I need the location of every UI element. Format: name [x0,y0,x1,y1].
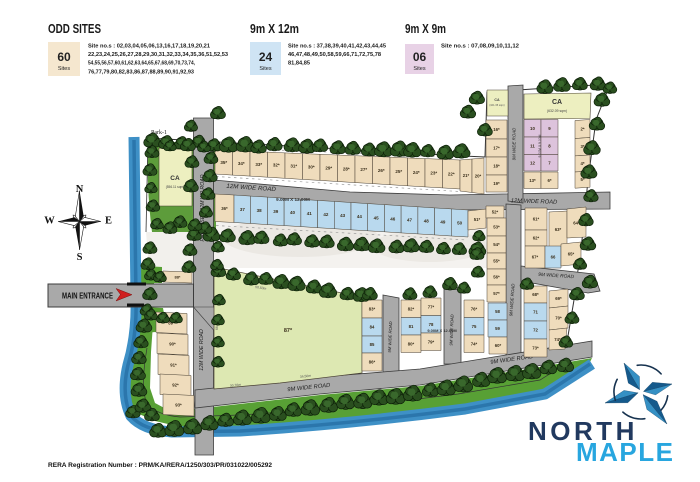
svg-text:(556.11 sqm): (556.11 sqm) [166,185,185,189]
svg-text:60*: 60* [495,343,502,348]
svg-text:Site no.s : 02,03,04,05,06,13,: Site no.s : 02,03,04,05,06,13,16,17,18,1… [88,44,211,50]
svg-text:19*: 19* [493,181,500,186]
svg-text:72: 72 [533,328,538,333]
svg-text:55*: 55* [493,259,500,264]
svg-text:12M WIDE ROAD: 12M WIDE ROAD [199,329,205,371]
svg-text:20*: 20* [475,173,482,178]
svg-text:12: 12 [530,160,535,165]
svg-text:77*: 77* [428,304,435,309]
svg-text:58: 58 [495,309,500,314]
svg-text:59: 59 [495,326,500,331]
svg-text:26*: 26* [378,168,385,173]
svg-text:4*: 4* [580,161,584,166]
svg-text:52*: 52* [492,210,499,215]
svg-text:75: 75 [472,324,477,329]
svg-text:6*: 6* [547,178,551,183]
svg-text:54,55,56,57,60,61,62,63,64,65,: 54,55,56,57,60,61,62,63,64,65,67,68,69,7… [88,61,195,67]
svg-text:11: 11 [530,143,535,148]
svg-text:88*: 88* [174,274,180,279]
svg-text:CA: CA [552,99,562,106]
svg-text:23*: 23* [430,171,437,176]
svg-text:9M WIDE ROAD: 9M WIDE ROAD [512,127,517,161]
svg-text:27*: 27* [360,167,367,172]
svg-text:13*: 13* [529,178,536,183]
svg-text:22,23,24,25,26,27,28,29,30,31,: 22,23,24,25,26,27,28,29,30,31,32,33,34,3… [88,52,229,58]
svg-text:Site no.s : 07,08,09,10,11,12: Site no.s : 07,08,09,10,11,12 [441,44,519,50]
svg-text:18*: 18* [493,164,500,169]
svg-text:84: 84 [370,325,375,330]
svg-text:ODD SITES: ODD SITES [48,22,101,36]
svg-text:62*: 62* [533,236,540,241]
svg-text:69*: 69* [555,296,562,301]
svg-text:35*: 35* [220,160,227,165]
svg-text:53*: 53* [493,225,500,230]
svg-text:36*: 36* [221,206,228,211]
svg-text:24*: 24* [413,170,420,175]
svg-text:33*: 33* [255,162,262,167]
svg-text:CA: CA [494,98,500,102]
svg-text:E: E [105,216,112,227]
svg-text:46: 46 [390,216,396,221]
svg-text:51*: 51* [474,217,481,222]
svg-text:67*: 67* [532,255,539,260]
svg-text:MAIN ENTRANCE: MAIN ENTRANCE [62,292,114,301]
svg-text:86*: 86* [369,360,376,365]
svg-text:22*: 22* [448,172,455,177]
svg-text:71: 71 [533,310,538,315]
svg-text:31*: 31* [290,164,297,169]
svg-text:24: 24 [259,50,273,64]
svg-text:25*: 25* [395,169,402,174]
svg-text:63*: 63* [555,227,562,232]
svg-text:37: 37 [240,207,246,212]
svg-text:45: 45 [374,215,380,220]
svg-text:48: 48 [424,218,430,223]
svg-text:9m X 12m: 9m X 12m [250,22,299,36]
svg-text:61*: 61* [533,217,540,222]
svg-text:76,77,79,80,82,83,86,87,88,89,: 76,77,79,80,82,83,86,87,88,89,90,91,92,9… [88,69,195,75]
svg-text:40: 40 [290,210,296,215]
svg-text:78: 78 [429,322,434,327]
svg-text:N: N [76,184,84,195]
svg-text:Sites: Sites [259,66,271,72]
svg-text:MAPLE: MAPLE [576,437,675,467]
svg-text:81,84,85: 81,84,85 [288,61,311,67]
svg-text:39: 39 [273,209,279,214]
svg-text:9m X 9m: 9m X 9m [405,22,446,36]
svg-text:56*: 56* [493,275,500,280]
svg-text:10: 10 [530,126,535,131]
svg-text:42: 42 [323,212,329,217]
svg-text:2*: 2* [580,127,584,132]
svg-text:60: 60 [57,50,71,64]
svg-text:Park-1: Park-1 [151,130,167,136]
svg-text:9.00M X 9.00M: 9.00M X 9.00M [538,134,542,157]
svg-text:54*: 54* [493,242,500,247]
svg-text:82*: 82* [408,306,415,311]
svg-text:76*: 76* [471,306,478,311]
svg-text:28*: 28* [343,166,350,171]
svg-text:57*: 57* [493,291,500,296]
svg-text:92*: 92* [172,383,179,388]
svg-text:38: 38 [257,208,263,213]
svg-text:32*: 32* [273,163,280,168]
svg-text:46,47,48,49,50,58,59,66,71,72,: 46,47,48,49,50,58,59,66,71,72,75,78 [288,52,382,58]
svg-text:93*: 93* [175,403,182,408]
svg-text:06: 06 [413,50,427,64]
svg-text:68*: 68* [532,292,539,297]
svg-text:21*: 21* [463,173,470,178]
svg-text:16*: 16* [493,127,500,132]
svg-text:83*: 83* [369,307,376,312]
svg-text:73*: 73* [532,346,539,351]
svg-text:(101.35 sqm): (101.35 sqm) [489,103,504,107]
svg-text:CA: CA [170,175,180,182]
svg-text:66: 66 [551,255,556,260]
svg-text:RERA Registration Number : PRM: RERA Registration Number : PRM/KA/RERA/1… [48,463,273,469]
svg-text:81: 81 [409,324,414,329]
svg-text:90*: 90* [169,342,176,347]
svg-text:79*: 79* [428,339,435,344]
svg-text:Site no.s : 37,38,39,40,41,42,: Site no.s : 37,38,39,40,41,42,43,44,45 [288,44,387,50]
svg-text:30*: 30* [308,165,315,170]
svg-text:50: 50 [457,221,463,226]
svg-text:17*: 17* [493,146,500,151]
svg-text:W: W [44,216,55,227]
svg-text:43: 43 [340,213,346,218]
svg-text:85: 85 [370,342,375,347]
svg-text:41: 41 [307,211,313,216]
svg-text:34*: 34* [238,161,245,166]
svg-text:70*: 70* [555,316,562,321]
svg-text:74*: 74* [471,341,478,346]
svg-text:49: 49 [440,220,446,225]
svg-text:65*: 65* [568,252,575,257]
svg-text:9.00M X 12.00M: 9.00M X 12.00M [427,328,457,333]
svg-text:91*: 91* [170,363,177,368]
svg-text:9.00M X 12.00M: 9.00M X 12.00M [276,197,310,202]
svg-text:44: 44 [357,214,363,219]
svg-text:29*: 29* [325,165,332,170]
svg-text:(632.09 sqm): (632.09 sqm) [547,109,567,113]
svg-text:S: S [77,252,83,263]
svg-text:Sites: Sites [413,66,425,72]
svg-text:Sites: Sites [58,66,70,72]
svg-text:80*: 80* [408,341,415,346]
svg-text:87*: 87* [284,328,293,334]
svg-text:47: 47 [407,217,413,222]
